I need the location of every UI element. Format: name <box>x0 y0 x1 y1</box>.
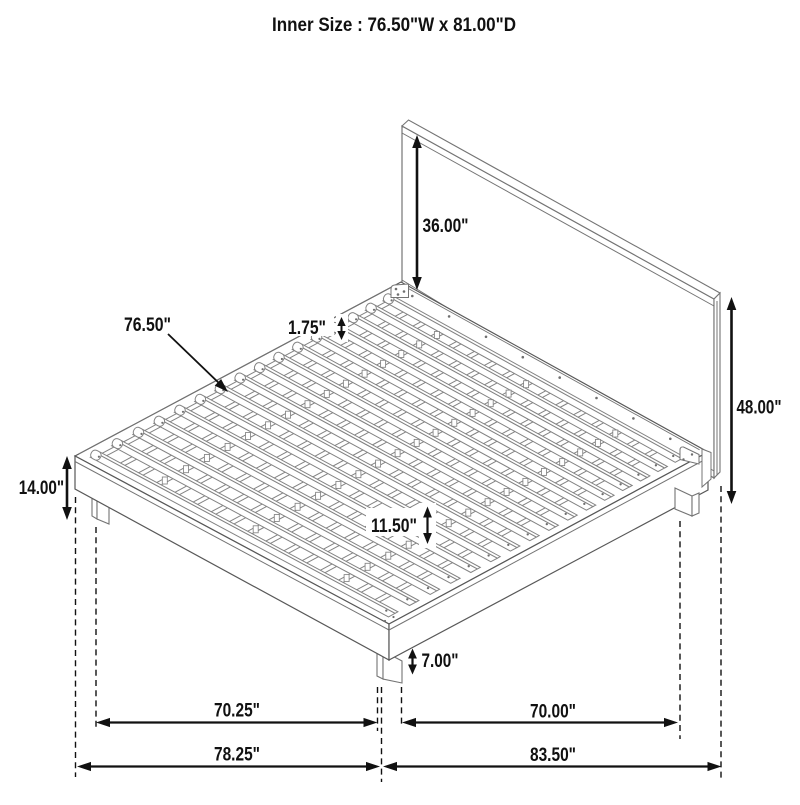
svg-text:Inner Size : 76.50"W x 81.00"D: Inner Size : 76.50"W x 81.00"D <box>272 14 516 36</box>
svg-text:1.75": 1.75" <box>288 318 326 339</box>
svg-text:70.00": 70.00" <box>530 702 576 723</box>
svg-text:7.00": 7.00" <box>422 651 459 672</box>
svg-text:78.25": 78.25" <box>214 745 260 766</box>
svg-text:14.00": 14.00" <box>19 478 64 499</box>
svg-text:83.50": 83.50" <box>530 745 576 766</box>
svg-text:36.00": 36.00" <box>423 216 469 237</box>
svg-text:11.50": 11.50" <box>371 516 417 537</box>
svg-text:76.50": 76.50" <box>124 315 171 336</box>
svg-text:70.25": 70.25" <box>214 701 260 722</box>
svg-text:48.00": 48.00" <box>737 398 782 419</box>
